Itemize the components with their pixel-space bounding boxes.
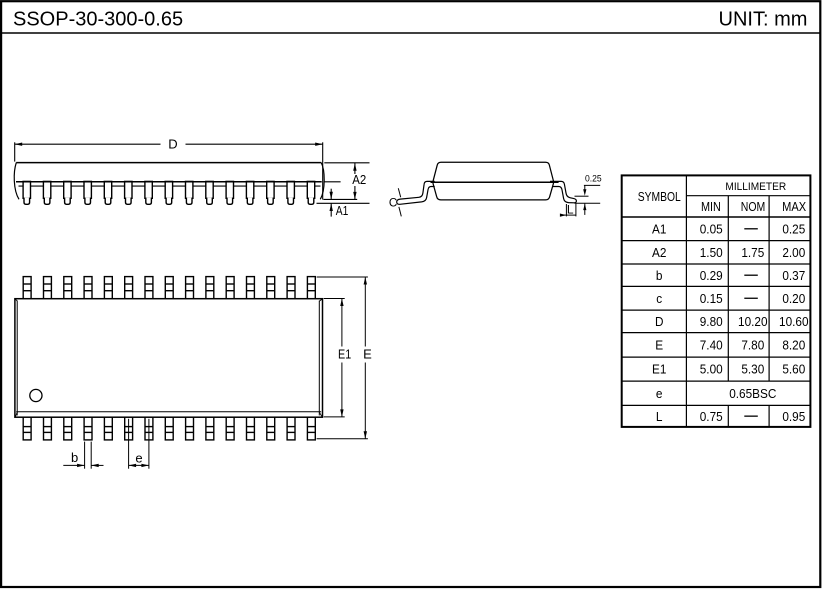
svg-text:MIN: MIN [701, 200, 721, 214]
svg-text:10.60: 10.60 [779, 314, 809, 329]
svg-text:9.80: 9.80 [700, 314, 723, 329]
svg-text:5.00: 5.00 [700, 362, 723, 377]
svg-text:D: D [168, 136, 177, 151]
svg-text:5.60: 5.60 [782, 362, 805, 377]
svg-text:0.75: 0.75 [700, 409, 723, 424]
svg-text:10.20: 10.20 [738, 314, 768, 329]
svg-text:0.25: 0.25 [782, 221, 805, 236]
svg-text:1.75: 1.75 [741, 245, 764, 260]
svg-text:0.29: 0.29 [700, 268, 723, 283]
svg-text:b: b [71, 450, 78, 465]
svg-text:e: e [656, 386, 663, 401]
svg-text:0.25: 0.25 [585, 174, 602, 184]
svg-text:E: E [655, 337, 663, 352]
svg-text:8.20: 8.20 [782, 337, 805, 352]
svg-text:MILLIMETER: MILLIMETER [725, 181, 786, 193]
svg-text:UNIT: mm: UNIT: mm [719, 8, 808, 30]
svg-text:MAX: MAX [782, 200, 807, 214]
svg-text:E: E [363, 347, 372, 362]
svg-text:A2: A2 [352, 172, 366, 187]
svg-text:2.00: 2.00 [782, 245, 805, 260]
svg-text:D: D [655, 314, 664, 329]
svg-text:A1: A1 [652, 221, 666, 236]
svg-text:A2: A2 [652, 245, 666, 260]
svg-text:e: e [135, 450, 142, 465]
svg-text:0.37: 0.37 [782, 268, 805, 283]
svg-text:7.40: 7.40 [700, 337, 723, 352]
svg-text:L: L [567, 202, 574, 216]
svg-text:L: L [656, 409, 663, 424]
svg-text:SSOP-30-300-0.65: SSOP-30-300-0.65 [13, 8, 183, 30]
svg-text:0.95: 0.95 [782, 409, 805, 424]
svg-text:0.65BSC: 0.65BSC [729, 386, 776, 401]
svg-text:b: b [656, 268, 663, 283]
svg-text:0.15: 0.15 [700, 291, 723, 306]
svg-text:C: C [389, 197, 397, 209]
svg-text:5.30: 5.30 [741, 362, 764, 377]
svg-text:c: c [656, 291, 662, 306]
svg-text:E1: E1 [652, 362, 666, 377]
svg-text:1.50: 1.50 [700, 245, 723, 260]
svg-text:0.20: 0.20 [782, 291, 805, 306]
svg-text:E1: E1 [338, 347, 351, 362]
svg-text:A1: A1 [336, 203, 349, 218]
svg-text:NOM: NOM [741, 200, 766, 214]
svg-text:0.05: 0.05 [700, 221, 723, 236]
svg-text:SYMBOL: SYMBOL [638, 189, 681, 204]
svg-text:7.80: 7.80 [741, 337, 764, 352]
